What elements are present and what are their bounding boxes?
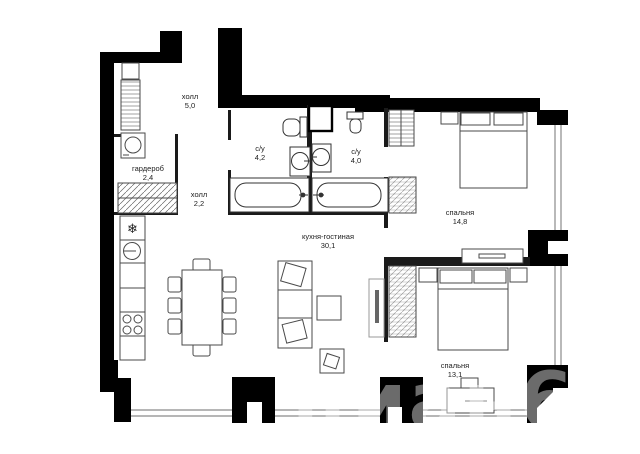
svg-text:с/у: с/у xyxy=(351,147,361,156)
bathtub xyxy=(312,178,388,212)
svg-text:2,2: 2,2 xyxy=(194,199,204,208)
room-label-wardrobe: гардероб 2,4 xyxy=(132,164,164,182)
toilet xyxy=(347,112,363,133)
chair xyxy=(168,277,181,292)
coffee-table xyxy=(317,296,341,320)
fridge-snowflake-icon: ❄ xyxy=(127,222,138,237)
kitchen-cabinet-1 xyxy=(120,263,145,288)
nightstand xyxy=(510,268,527,282)
room-label-bathroom-4-0: с/у 4,0 xyxy=(351,147,361,165)
sink xyxy=(290,147,311,176)
floor-plan: ❄ xyxy=(0,0,640,454)
room-label-hall-2-2: холл 2,2 xyxy=(191,190,207,208)
room-label-bedroom-14-8: спальня 14,8 xyxy=(446,208,474,226)
bathroom-1-fixtures xyxy=(230,117,311,212)
kitchen-units xyxy=(120,216,145,360)
bed xyxy=(460,112,527,188)
chair xyxy=(223,319,236,334)
svg-text:с/у: с/у xyxy=(255,144,265,153)
svg-text:4,0: 4,0 xyxy=(351,156,361,165)
nightstand xyxy=(441,112,458,124)
svg-text:14,8: 14,8 xyxy=(453,217,468,226)
chair xyxy=(168,319,181,334)
washing-machine xyxy=(121,133,145,158)
vent-shaft xyxy=(309,106,332,131)
chair xyxy=(193,259,210,271)
bed xyxy=(438,268,508,350)
tv xyxy=(375,290,379,323)
svg-text:холл: холл xyxy=(182,92,198,101)
watermark: циан6 xyxy=(292,357,575,447)
bathtub xyxy=(230,178,309,212)
dresser xyxy=(462,249,523,263)
stove xyxy=(120,312,145,336)
svg-text:30,1: 30,1 xyxy=(321,241,336,250)
hall-furniture xyxy=(121,63,145,158)
tv-console xyxy=(369,279,384,337)
floor-plan-drawing: ❄ xyxy=(0,0,640,454)
svg-text:4,2: 4,2 xyxy=(255,153,265,162)
nightstand xyxy=(419,268,437,282)
svg-text:5,0: 5,0 xyxy=(185,101,195,110)
bedroom-1-furniture xyxy=(389,110,527,263)
entrance-left-jamb xyxy=(160,31,182,63)
svg-text:2,4: 2,4 xyxy=(143,173,153,182)
dining-set xyxy=(168,259,236,356)
hall-cabinet xyxy=(122,63,139,79)
toilet xyxy=(283,117,307,137)
room-label-kitchen-living: кухня-гостиная 30,1 xyxy=(302,232,354,250)
svg-text:холл: холл xyxy=(191,190,207,199)
kitchen-cabinet-3 xyxy=(120,336,145,360)
svg-text:кухня-гостиная: кухня-гостиная xyxy=(302,232,354,241)
chair xyxy=(193,344,210,356)
wardrobe-room-furniture xyxy=(118,183,177,213)
chair xyxy=(223,277,236,292)
svg-text:спальня: спальня xyxy=(446,208,474,217)
chair xyxy=(168,298,181,313)
sink xyxy=(311,144,331,172)
svg-text:гардероб: гардероб xyxy=(132,164,164,173)
hall-shelving xyxy=(121,80,140,130)
bathroom-2-fixtures xyxy=(309,106,388,212)
chair xyxy=(223,298,236,313)
room-label-bathroom-4-2: с/у 4,2 xyxy=(255,144,265,162)
sofa xyxy=(278,261,312,348)
room-label-hall-5-0: холл 5,0 xyxy=(182,92,198,110)
dining-table xyxy=(182,270,222,345)
kitchen-cabinet-2 xyxy=(120,288,145,312)
